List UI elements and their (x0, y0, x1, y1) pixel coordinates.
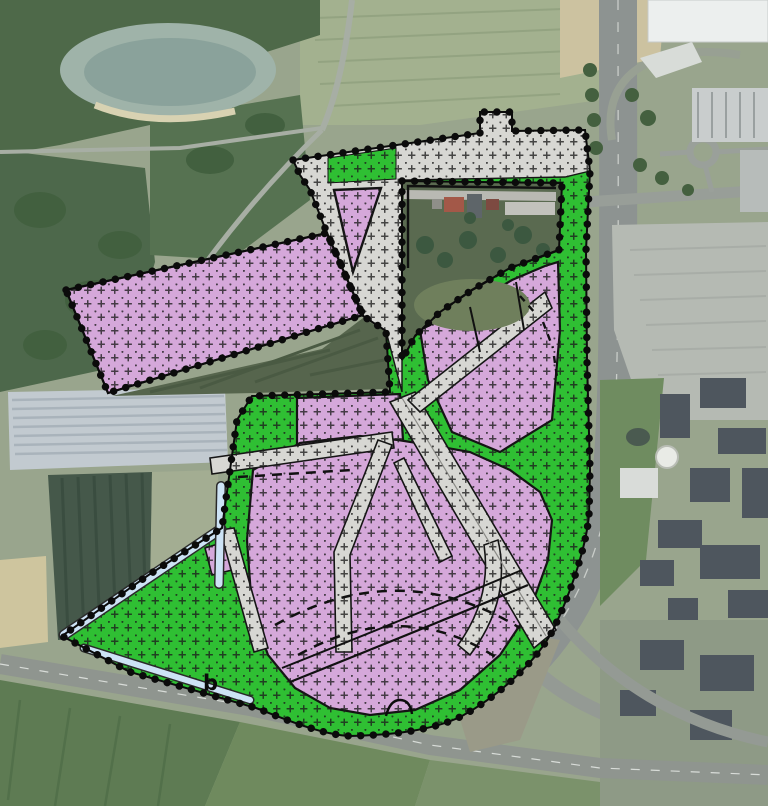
annotation-b: b (203, 671, 218, 695)
map-canvas[interactable]: b (0, 0, 768, 806)
zoning-map-svg[interactable]: b (0, 0, 768, 806)
